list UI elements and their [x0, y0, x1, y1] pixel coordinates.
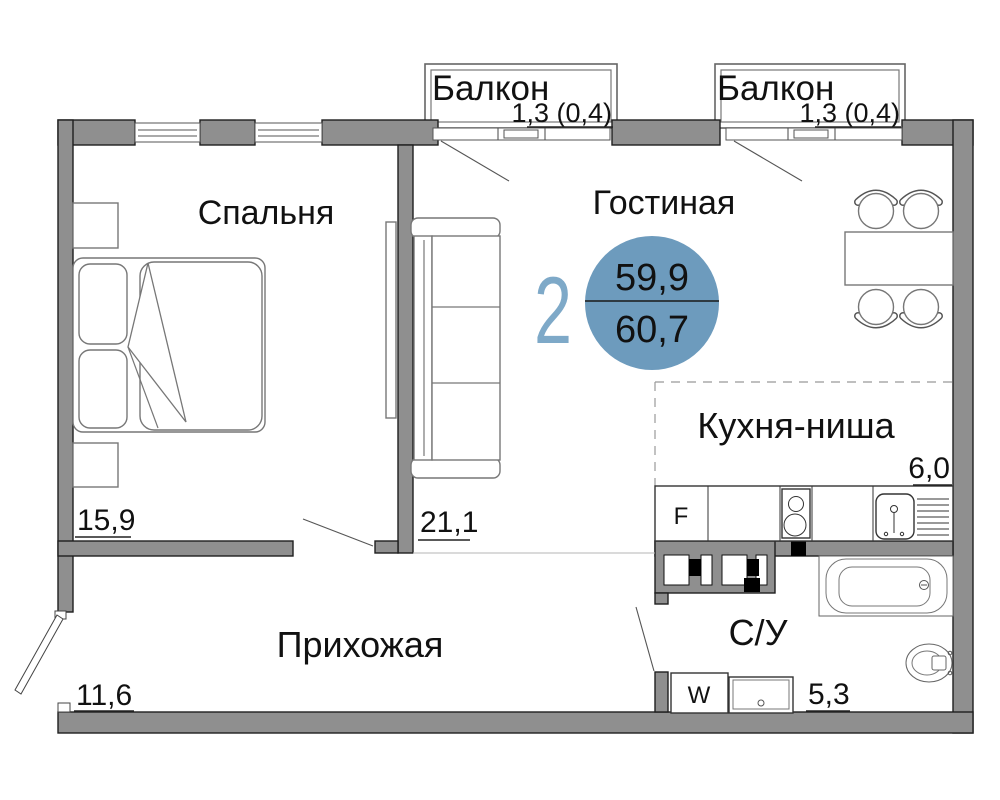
shaft-block-1 [689, 559, 701, 576]
fridge-label: F [674, 503, 689, 530]
toilet-icon [906, 644, 952, 682]
bathroom-label: С/У [729, 612, 789, 653]
bedroom-area: 15,9 [77, 504, 135, 537]
sofa-back [414, 236, 432, 460]
chair-icon [859, 194, 894, 229]
wall-top-2 [322, 120, 438, 145]
toilet-flush [932, 656, 946, 670]
balcony-right-sill [726, 128, 902, 181]
balcony-right-door-swing [734, 141, 802, 181]
floor-plan: 2 59,9 60,7 Спальня 15,9 Гостиная 21,1 К… [0, 0, 1000, 800]
living-label: Гостиная [593, 184, 736, 222]
kitchen-label: Кухня-ниша [697, 405, 895, 446]
wall-bedroom-south [58, 541, 293, 556]
area-living: 60,7 [615, 309, 689, 351]
sofa-armrest-top [411, 218, 500, 238]
stove-icon [782, 489, 810, 538]
balcony-left-sill [433, 128, 610, 181]
bedroom-window-2 [255, 123, 322, 142]
nightstand-bottom [73, 443, 118, 487]
shaft-duct-3 [722, 555, 747, 585]
rooms-count: 2 [534, 258, 572, 364]
wall-bedroom-divider-foot [375, 541, 398, 553]
apartment-badge: 2 59,9 60,7 [534, 236, 719, 370]
wall-bedroom-divider [398, 145, 413, 553]
wall-left [58, 120, 73, 612]
chair-icon [904, 290, 939, 325]
entrance-door [15, 611, 70, 712]
bedroom-label: Спальня [198, 194, 335, 232]
bathroom-door-swing [636, 607, 654, 671]
balcony-right-sill-window [794, 130, 828, 138]
wall-insulation-block-2 [791, 541, 806, 556]
shaft-block-3 [744, 578, 760, 592]
wall-bath-stub [655, 672, 668, 712]
shaft-foot [655, 593, 668, 604]
wall-right [953, 120, 973, 733]
hallway-label: Прихожая [277, 624, 444, 665]
bedroom-door-swing [303, 519, 373, 546]
wall-bottom [58, 712, 973, 733]
wall-between-balconies [612, 120, 720, 145]
bathtub-icon [819, 556, 953, 616]
wall-top-pier [200, 120, 255, 145]
kitchen-area: 6,0 [908, 452, 950, 485]
balcony-left-door-swing [441, 141, 509, 181]
floor-plan-page: 2 59,9 60,7 Спальня 15,9 Гостиная 21,1 К… [0, 0, 1000, 800]
chair-icon [859, 290, 894, 325]
chair-icon [904, 194, 939, 229]
shaft-block-2 [747, 559, 759, 576]
entrance-door-leaf [15, 615, 63, 694]
dining-set-icon [845, 194, 953, 325]
entrance-jamb [58, 703, 70, 712]
area-total: 59,9 [615, 257, 689, 299]
bath-sink-outer [729, 677, 793, 713]
bedroom-window-1 [135, 123, 200, 142]
sink-bowl [876, 494, 914, 539]
kitchen-counter [655, 486, 953, 541]
sofa-icon [411, 218, 500, 478]
shaft-duct-1 [664, 555, 689, 585]
bed-icon [73, 258, 265, 432]
balcony-right-area: 1,3 (0,4) [799, 98, 900, 128]
pillow-icon [79, 264, 127, 344]
bathroom-sink-icon [729, 677, 793, 713]
wardrobe-icon [386, 222, 396, 418]
ventilation-shaft [655, 541, 775, 604]
living-area: 21,1 [420, 506, 478, 539]
sofa-armrest-bottom [411, 458, 500, 478]
dining-table [845, 232, 953, 285]
balcony-left-area: 1,3 (0,4) [511, 98, 612, 128]
bathroom-area: 5,3 [808, 678, 850, 711]
washer-label: W [688, 682, 711, 709]
shaft-duct-2 [701, 555, 712, 585]
nightstand-top [73, 203, 118, 248]
balcony-left-sill-window [504, 130, 538, 138]
sofa-seats [432, 236, 500, 460]
hallway-area: 11,6 [76, 679, 132, 712]
pillow-icon [79, 350, 127, 428]
